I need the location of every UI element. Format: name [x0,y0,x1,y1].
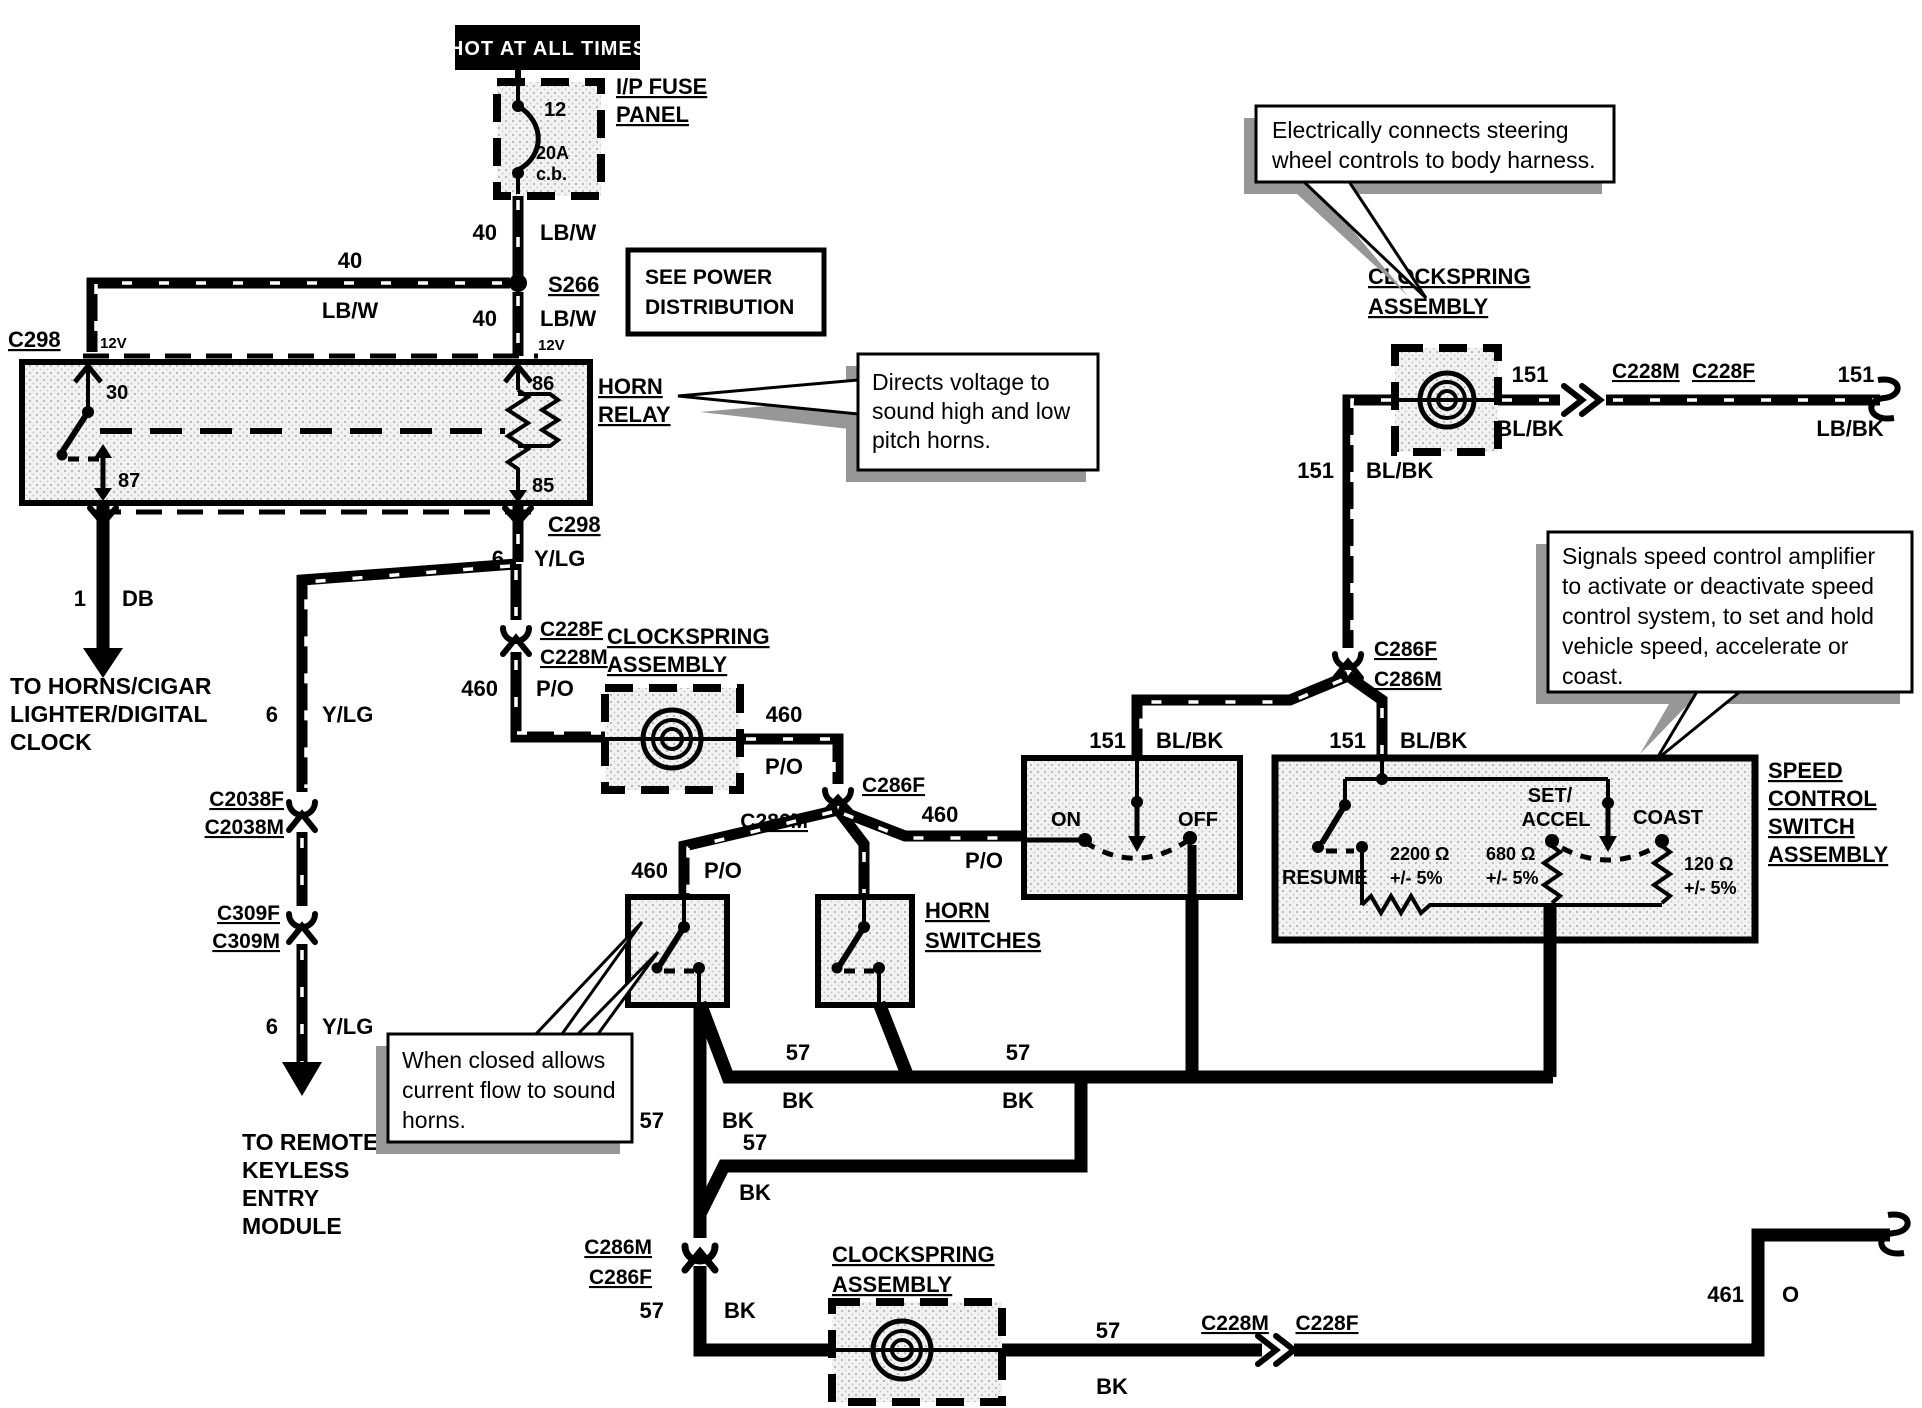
wire40-label-c: 40 [338,248,362,273]
speed-resume-label: RESUME [1282,867,1368,889]
onoff-on-label: ON [1051,809,1081,831]
v12-label-right: 12V [538,337,565,354]
wire57-label-a: 57 [786,1040,810,1065]
wire-lbw-label-c: LB/W [322,298,378,323]
horn-switch-box-1 [628,897,727,1005]
mid-clockspring-section: C228F C228M 460 P/O CLOCKSPRING ASSEMBLY… [461,564,1025,897]
wiring-diagram-page: HOT AT ALL TIMES 12 20A c.b. I/P FUSE PA… [0,0,1922,1408]
horn-callout-line-1: When closed allows [402,1047,605,1073]
speed-callout-line-4: vehicle speed, accelerate or [1562,633,1849,659]
horn-relay-section: 30 87 86 85 HORN RELAY C298 [22,362,671,537]
v12-label-left: 12V [100,335,127,352]
speed-callout: Signals speed control amplifier to activ… [1536,532,1912,760]
wire-bk-label-e: BK [724,1298,756,1323]
wire-ylg-label-a: Y/LG [534,546,585,571]
wire151-label-e: 151 [1838,362,1875,387]
dest-horns-line-3: CLOCK [10,729,92,755]
power-feed-section: HOT AT ALL TIMES 12 20A c.b. I/P FUSE PA… [8,25,824,356]
speed-name-2: CONTROL [1768,786,1877,811]
see-power-label-1: SEE POWER [645,266,772,289]
onoff-off-label: OFF [1178,809,1218,831]
wire-blbk-label-a: BL/BK [1366,458,1433,483]
wire151-label-b: 151 [1089,728,1126,753]
connector-c286f-bottom-label: C286F [589,1266,652,1289]
connector-c309m-label: C309M [212,930,280,953]
connector-c286m-bottom-label: C286M [584,1236,652,1259]
dest-keyless-line-3: ENTRY [242,1185,319,1211]
splice-s266 [509,274,527,292]
wire151-label-c: 151 [1329,728,1366,753]
connector-c2038m-label: C2038M [205,816,284,839]
connector-c228f-top-label: C228F [1692,360,1755,383]
speed-set-label-2: ACCEL [1522,809,1591,831]
wire460-label-d: 460 [922,802,959,827]
dest-horns-line-2: LIGHTER/DIGITAL [10,701,208,727]
clockspring-callout-line-2: wheel controls to body harness. [1271,147,1595,173]
see-power-box [628,250,824,334]
wire-o-label: O [1782,1282,1799,1307]
see-power-label-2: DISTRIBUTION [645,296,794,319]
speed-r2200-label: 2200 Ω [1390,844,1449,864]
bottom-clockspring-label-1: CLOCKSPRING [832,1242,995,1267]
connector-c286m-right-label: C286M [1374,668,1442,691]
horn-callout-line-3: horns. [402,1107,466,1133]
speed-r2200-tol-label: +/- 5% [1390,868,1443,888]
wire-ylg-label-c: Y/LG [322,1014,373,1039]
wire-bk-label-a: BK [782,1088,814,1113]
speed-callout-line-3: control system, to set and hold [1562,603,1874,629]
relay-callout-line-2: sound high and low [872,398,1071,424]
horn-relay-label-2: RELAY [598,402,671,427]
connector-c228m-mid-label: C228M [540,646,608,669]
dest-keyless-line-1: TO REMOTE [242,1129,378,1155]
ip-fuse-panel-label-1: I/P FUSE [616,74,707,99]
hot-at-all-times-label: HOT AT ALL TIMES [449,38,647,60]
wire151-label-a: 151 [1297,458,1334,483]
wire-blbk-label-d: BL/BK [1496,416,1563,441]
connector-c298-bottom-label: C298 [548,512,601,537]
relay-pin30-label: 30 [106,382,128,404]
wire57-label-e: 57 [640,1298,664,1323]
ip-fuse-panel-label-2: PANEL [616,102,689,127]
connector-c286f-right-label: C286F [1374,638,1437,661]
wire-blbk-label-b: BL/BK [1156,728,1223,753]
wire57-label-f: 57 [1096,1318,1120,1343]
connector-c228m-bottom-label: C228M [1201,1312,1269,1335]
wire-bk-label-d: BK [722,1108,754,1133]
wire6-label-c: 6 [266,1014,278,1039]
fuse-rating-label: 20A [536,143,569,163]
wire-continuation-bottom-right [1881,1214,1907,1253]
relay-pin85-label: 85 [532,475,554,497]
speed-r680-tol-label: +/- 5% [1486,868,1539,888]
wire40-label-a: 40 [473,220,497,245]
speed-coast-label: COAST [1633,807,1703,829]
dest-keyless-line-2: KEYLESS [242,1157,349,1183]
wire-po-label-b: P/O [765,754,803,779]
wire-lbbk-label: LB/BK [1816,416,1883,441]
wire40-label-b: 40 [473,306,497,331]
connector-c228f-mid-label: C228F [540,618,603,641]
speed-callout-line-2: to activate or deactivate speed [1562,573,1874,599]
wiring-diagram: HOT AT ALL TIMES 12 20A c.b. I/P FUSE PA… [0,0,1922,1408]
wire6-label-b: 6 [266,702,278,727]
wire-blbk-label-c: BL/BK [1400,728,1467,753]
dest-horns-line-1: TO HORNS/CIGAR [10,673,212,699]
wire57-label-b: 57 [1006,1040,1030,1065]
speed-name-1: SPEED [1768,758,1843,783]
connector-c286f-mid-label: C286F [862,774,925,797]
wire-po-label-c: P/O [704,858,742,883]
speed-r120-label: 120 Ω [1684,854,1733,874]
ground-57-network: 57 BK 57 BK 57 BK 57 BK C286M C286F 57 B… [584,897,1907,1402]
wire57-label-d: 57 [640,1108,664,1133]
wire-po-label-d: P/O [965,848,1003,873]
connector-c228m-top-label: C228M [1612,360,1680,383]
wire1-label: 1 [74,586,86,611]
connector-c2038f-label: C2038F [209,788,284,811]
relay-pin87-label: 87 [118,470,140,492]
horn-switch-callout: When closed allows current flow to sound… [376,922,658,1154]
speed-name-4: ASSEMBLY [1768,842,1889,867]
wire-continuation-top-right [1871,379,1897,418]
wire460-label-c: 460 [631,858,668,883]
speed-name-3: SWITCH [1768,814,1855,839]
wire460-label-b: 460 [766,702,803,727]
wire151-label-d: 151 [1512,362,1549,387]
horn-switches-section: HORN SWITCHES [628,897,1041,1005]
horn-switches-label-1: HORN [925,898,990,923]
horn-relay-label-1: HORN [598,374,663,399]
wire461-label: 461 [1707,1282,1744,1307]
wire-bk-label-c: BK [739,1180,771,1205]
horn-switches-label-2: SWITCHES [925,928,1041,953]
fuse-rating-cb-label: c.b. [536,164,567,184]
speed-callout-line-5: coast. [1562,663,1623,689]
speed-r680-label: 680 Ω [1486,844,1535,864]
bottom-clockspring-label-2: ASSEMBLY [832,1272,953,1297]
speed-control-section: RESUME 2200 Ω +/- 5% SET/ ACCEL 680 Ω +/… [1275,758,1889,940]
wire57-label-c: 57 [743,1130,767,1155]
speed-r120-tol-label: +/- 5% [1684,878,1737,898]
relay-callout-line-3: pitch horns. [872,427,991,453]
splice-s266-label: S266 [548,272,599,297]
connector-c298-top-label: C298 [8,327,61,352]
right-clockspring-label-2: ASSEMBLY [1368,294,1489,319]
wire-db-label: DB [122,586,154,611]
mid-clockspring-label-2: ASSEMBLY [607,652,728,677]
horn-callout-line-2: current flow to sound [402,1077,616,1103]
wire-57-switch2-run [879,1003,1553,1077]
mid-clockspring-label-1: CLOCKSPRING [607,624,770,649]
wire-bk-label-f: BK [1096,1374,1128,1399]
wire460-label-a: 460 [461,676,498,701]
wire-po-label-a: P/O [536,676,574,701]
speed-callout-line-1: Signals speed control amplifier [1562,543,1876,569]
relay-callout-line-1: Directs voltage to [872,369,1050,395]
speed-set-label-1: SET/ [1528,785,1573,807]
connector-c228f-bottom-label: C228F [1295,1312,1358,1335]
wire-ylg-label-b: Y/LG [322,702,373,727]
onoff-switch-section: ON OFF [1024,758,1240,897]
relay-pin86-label: 86 [532,373,554,395]
dest-keyless-line-4: MODULE [242,1213,342,1239]
clockspring-callout-line-1: Electrically connects steering [1272,117,1569,143]
wire-bk-label-b: BK [1002,1088,1034,1113]
connector-c309f-label: C309F [217,902,280,925]
wire-lbw-label-b: LB/W [540,306,596,331]
fuse-pin-label: 12 [544,99,566,121]
relay-callout: Directs voltage to sound high and low pi… [678,354,1098,482]
wire-lbw-label-a: LB/W [540,220,596,245]
wire-57-to-461 [1294,1235,1890,1350]
